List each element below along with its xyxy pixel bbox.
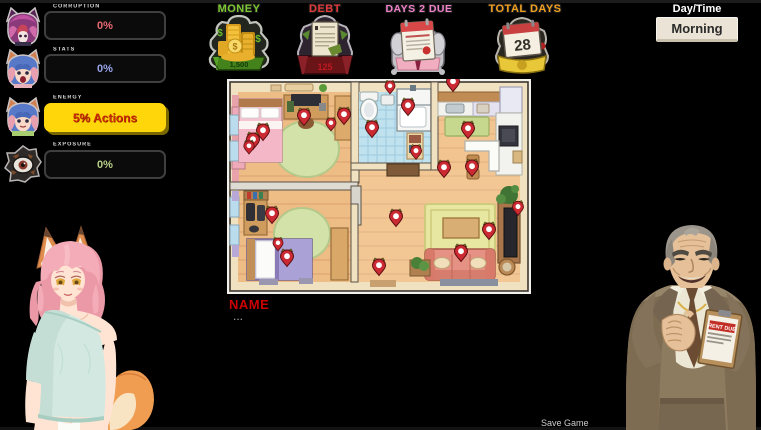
svg-text:$: $ — [217, 28, 223, 39]
svg-text:$: $ — [255, 34, 261, 45]
svg-text:$: $ — [232, 42, 237, 52]
svg-text:28: 28 — [513, 36, 531, 55]
svg-text:125: 125 — [317, 62, 332, 72]
svg-text:1,500: 1,500 — [230, 60, 249, 69]
